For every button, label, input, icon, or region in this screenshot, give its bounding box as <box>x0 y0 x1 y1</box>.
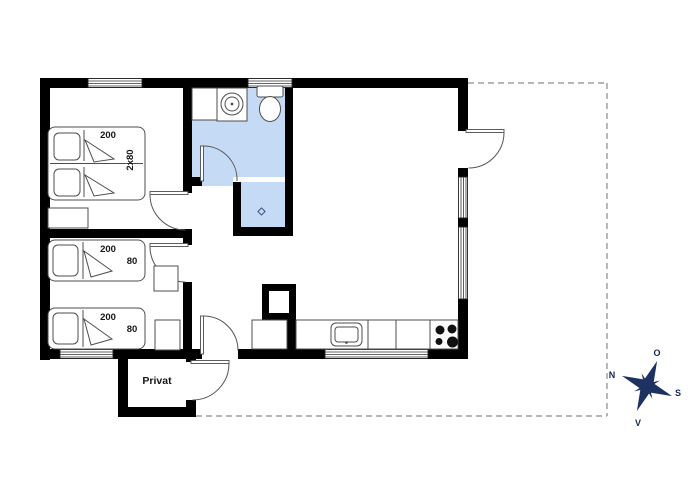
compass-north-label: N <box>609 370 616 380</box>
bedroom-wall-lower <box>183 282 192 349</box>
dresser-bedroom1 <box>48 208 88 228</box>
toilet-icon <box>257 86 283 122</box>
compass-east-label: O <box>653 348 660 358</box>
vanity-counter <box>192 88 217 120</box>
privat-room-label: Privat <box>142 375 172 387</box>
shower-west-wall <box>233 182 241 232</box>
annex-wall-left <box>118 349 128 417</box>
floor-plan-drawing: N O S V 200 2x80 200 80 200 80 Privat <box>0 0 700 500</box>
kitchen-sink-icon <box>331 323 362 346</box>
chimney-shaft <box>252 284 296 351</box>
chimney-inner <box>269 291 289 313</box>
window-kitchen-bottom <box>325 350 428 359</box>
chimney-wall-extension <box>287 320 296 351</box>
wall-right-3 <box>458 299 468 359</box>
wall-right-pier <box>458 218 468 227</box>
single-bed-bottom-length-label: 200 <box>100 312 116 323</box>
wall-right-1 <box>458 78 468 131</box>
wardrobe-bedroom2-lower <box>155 320 180 350</box>
single-bed-top-length-label: 200 <box>100 244 116 255</box>
washbasin-icon <box>217 88 247 121</box>
compass-west-label: V <box>635 418 641 428</box>
window-bedroom2-bottom <box>60 350 113 359</box>
door-privat <box>191 361 229 401</box>
double-bed-width-label: 2x80 <box>125 149 136 170</box>
bathroom-south-wall <box>183 177 202 186</box>
bedroom-divider-wall <box>45 229 192 238</box>
floor-plan: N O S V 200 2x80 200 80 200 80 Privat <box>0 0 700 500</box>
window-living-right-1 <box>459 177 468 218</box>
shower-floor <box>241 182 285 227</box>
window-bedroom1-top <box>88 79 142 88</box>
single-bed-bottom-width-label: 80 <box>127 324 138 335</box>
door-bedroom1 <box>150 192 188 231</box>
compass-south-label: S <box>675 388 681 398</box>
shower-south-wall <box>233 227 293 236</box>
compass-rose-icon: N O S V <box>609 348 682 428</box>
annex-wall-right-bottom <box>186 400 196 417</box>
wardrobe-bedroom2-upper <box>154 266 178 291</box>
door-terrace <box>466 130 504 169</box>
double-bed-length-label: 200 <box>100 130 116 141</box>
single-bed-top-width-label: 80 <box>127 256 138 267</box>
bathroom-east-wall <box>285 88 293 236</box>
wall-right-2 <box>458 168 468 177</box>
bathroom-floor-door-alcove <box>202 177 233 186</box>
hall-cabinet <box>252 320 287 349</box>
bedroom1-furniture <box>48 127 145 228</box>
door-entrance <box>201 316 239 354</box>
kitchen <box>296 320 458 349</box>
annex-wall-bottom <box>118 407 196 417</box>
doors <box>150 130 504 401</box>
window-living-right-2 <box>459 227 468 299</box>
bedroom2-furniture <box>48 240 180 350</box>
kitchen-counter <box>296 320 458 349</box>
